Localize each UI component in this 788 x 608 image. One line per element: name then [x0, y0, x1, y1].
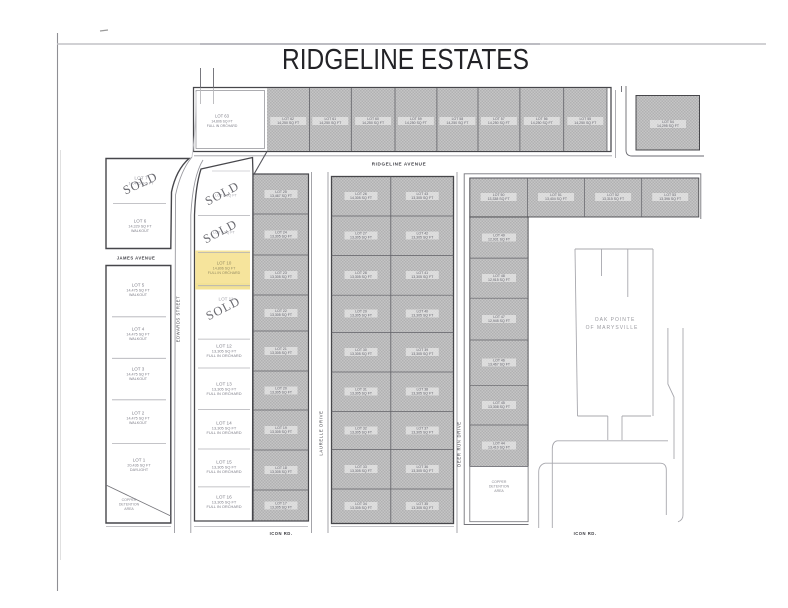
- svg-text:13,305 SQ FT: 13,305 SQ FT: [270, 275, 293, 279]
- svg-text:13,410 SQ FT: 13,410 SQ FT: [488, 446, 511, 450]
- svg-text:LOT 4: LOT 4: [132, 327, 145, 332]
- svg-text:JAMES AVENUE: JAMES AVENUE: [117, 256, 156, 261]
- svg-text:13,305 SQ FT: 13,305 SQ FT: [411, 314, 434, 318]
- svg-text:LAURELLE DRIVE: LAURELLE DRIVE: [319, 410, 324, 455]
- svg-text:FULL IN ORCHARD: FULL IN ORCHARD: [206, 469, 241, 474]
- svg-text:13,305 SQ FT: 13,305 SQ FT: [270, 313, 293, 317]
- svg-text:14,250 SQ FT: 14,250 SQ FT: [362, 121, 385, 125]
- svg-text:13,315 SQ FT: 13,315 SQ FT: [602, 197, 625, 201]
- svg-text:13,305 SQ FT: 13,305 SQ FT: [350, 392, 373, 396]
- svg-text:DETENTION: DETENTION: [119, 503, 140, 507]
- svg-text:14,475 SQ FT: 14,475 SQ FT: [126, 333, 150, 337]
- svg-text:13,305 SQ FT: 13,305 SQ FT: [350, 469, 373, 473]
- svg-text:FULL IN ORCHARD: FULL IN ORCHARD: [208, 271, 241, 275]
- svg-text:FULL IN ORCHARD: FULL IN ORCHARD: [207, 124, 238, 128]
- svg-text:RIDGELINE ESTATES: RIDGELINE ESTATES: [282, 44, 529, 76]
- svg-text:14,250 SQ FT: 14,250 SQ FT: [531, 121, 554, 125]
- svg-text:14,475 SQ FT: 14,475 SQ FT: [126, 417, 150, 421]
- svg-text:FULL IN ORCHARD: FULL IN ORCHARD: [206, 430, 241, 435]
- svg-text:14,475 SQ FT: 14,475 SQ FT: [126, 373, 150, 377]
- svg-text:LOT 63: LOT 63: [215, 114, 230, 119]
- svg-text:13,305 SQ FT: 13,305 SQ FT: [350, 352, 373, 356]
- svg-text:13,305 SQ FT: 13,305 SQ FT: [350, 314, 373, 318]
- svg-text:FULL IN ORCHARD: FULL IN ORCHARD: [206, 391, 241, 396]
- svg-text:LOT 1: LOT 1: [133, 458, 146, 463]
- svg-text:LOT 3: LOT 3: [132, 367, 145, 372]
- svg-text:AREA: AREA: [494, 489, 504, 493]
- svg-text:ICON RD.: ICON RD.: [270, 531, 293, 536]
- svg-text:13,308 SQ FT: 13,308 SQ FT: [488, 405, 511, 409]
- svg-text:LOT 10: LOT 10: [217, 261, 232, 266]
- svg-text:13,305 SQ FT: 13,305 SQ FT: [350, 431, 373, 435]
- svg-text:13,305 SQ FT: 13,305 SQ FT: [270, 430, 293, 434]
- svg-text:13,305 SQ FT: 13,305 SQ FT: [411, 236, 434, 240]
- svg-text:14,250 SQ FT: 14,250 SQ FT: [574, 121, 597, 125]
- svg-text:12,931 SQ FT: 12,931 SQ FT: [488, 238, 511, 242]
- svg-text:LOT 6: LOT 6: [134, 219, 147, 224]
- svg-text:14,295 SQ FT: 14,295 SQ FT: [657, 124, 680, 128]
- svg-text:14,806 SQ FT: 14,806 SQ FT: [213, 267, 236, 271]
- svg-text:WALKOUT: WALKOUT: [129, 421, 148, 425]
- svg-text:FULL IN ORCHARD: FULL IN ORCHARD: [206, 353, 241, 358]
- svg-text:14,475 SQ FT: 14,475 SQ FT: [126, 289, 150, 293]
- svg-text:14,806 SQ FT: 14,806 SQ FT: [211, 120, 232, 124]
- svg-text:13,338 SQ FT: 13,338 SQ FT: [488, 197, 511, 201]
- svg-text:WALKOUT: WALKOUT: [131, 229, 150, 233]
- svg-text:13,305 SQ FT: 13,305 SQ FT: [350, 506, 373, 510]
- svg-text:14,250 SQ FT: 14,250 SQ FT: [277, 121, 300, 125]
- svg-text:DAYLIGHT: DAYLIGHT: [130, 468, 149, 472]
- svg-text:13,305 SQ FT: 13,305 SQ FT: [350, 275, 373, 279]
- svg-text:14,250 SQ FT: 14,250 SQ FT: [446, 121, 469, 125]
- svg-text:LOT 5: LOT 5: [132, 283, 145, 288]
- svg-text:13,305 SQ FT: 13,305 SQ FT: [411, 196, 434, 200]
- svg-text:EDWARDS STREET: EDWARDS STREET: [176, 296, 181, 342]
- svg-text:DEER RUN DRIVE: DEER RUN DRIVE: [457, 421, 462, 467]
- svg-text:13,305 SQ FT: 13,305 SQ FT: [411, 431, 434, 435]
- svg-text:14,329 SQ FT: 14,329 SQ FT: [128, 225, 152, 229]
- svg-text:14,250 SQ FT: 14,250 SQ FT: [405, 121, 428, 125]
- svg-text:13,305 SQ FT: 13,305 SQ FT: [411, 392, 434, 396]
- svg-text:COPPER: COPPER: [122, 498, 137, 502]
- svg-text:13,305 SQ FT: 13,305 SQ FT: [411, 352, 434, 356]
- svg-text:OF MARYSVILLE: OF MARYSVILLE: [586, 325, 639, 331]
- svg-text:13,305 SQ FT: 13,305 SQ FT: [270, 391, 293, 395]
- svg-text:13,305 SQ FT: 13,305 SQ FT: [270, 506, 293, 510]
- svg-text:WALKOUT: WALKOUT: [129, 293, 148, 297]
- svg-text:12,915 SQ FT: 12,915 SQ FT: [488, 278, 511, 282]
- svg-text:COPPER: COPPER: [492, 480, 507, 484]
- svg-text:13,467 SQ FT: 13,467 SQ FT: [488, 363, 511, 367]
- svg-text:WALKOUT: WALKOUT: [129, 377, 148, 381]
- svg-text:13,396 SQ FT: 13,396 SQ FT: [659, 197, 682, 201]
- svg-text:13,305 SQ FT: 13,305 SQ FT: [411, 275, 434, 279]
- svg-text:13,305 SQ FT: 13,305 SQ FT: [350, 236, 373, 240]
- svg-text:AREA: AREA: [124, 507, 134, 511]
- svg-text:13,305 SQ FT: 13,305 SQ FT: [270, 470, 293, 474]
- svg-text:WALKOUT: WALKOUT: [129, 337, 148, 341]
- svg-text:ICON RD.: ICON RD.: [574, 531, 597, 536]
- svg-text:LOT 2: LOT 2: [132, 411, 145, 416]
- svg-text:14,250 SQ FT: 14,250 SQ FT: [488, 121, 511, 125]
- svg-text:RIDGELINE AVENUE: RIDGELINE AVENUE: [372, 162, 427, 167]
- svg-text:14,305 SQ FT: 14,305 SQ FT: [350, 196, 373, 200]
- svg-text:DETENTION: DETENTION: [489, 485, 510, 489]
- svg-text:FULL IN ORCHARD: FULL IN ORCHARD: [206, 504, 241, 509]
- svg-text:13,404 SQ FT: 13,404 SQ FT: [545, 197, 568, 201]
- svg-text:20,436 SQ FT: 20,436 SQ FT: [127, 464, 151, 468]
- svg-text:12,945 SQ FT: 12,945 SQ FT: [488, 319, 511, 323]
- svg-text:13,305 SQ FT: 13,305 SQ FT: [411, 506, 434, 510]
- svg-text:13,305 SQ FT: 13,305 SQ FT: [270, 235, 293, 239]
- svg-text:OAK POINTE: OAK POINTE: [595, 317, 636, 323]
- svg-text:13,467 SQ FT: 13,467 SQ FT: [270, 194, 293, 198]
- svg-text:14,250 SQ FT: 14,250 SQ FT: [319, 121, 342, 125]
- svg-text:13,305 SQ FT: 13,305 SQ FT: [270, 351, 293, 355]
- svg-text:13,305 SQ FT: 13,305 SQ FT: [411, 469, 434, 473]
